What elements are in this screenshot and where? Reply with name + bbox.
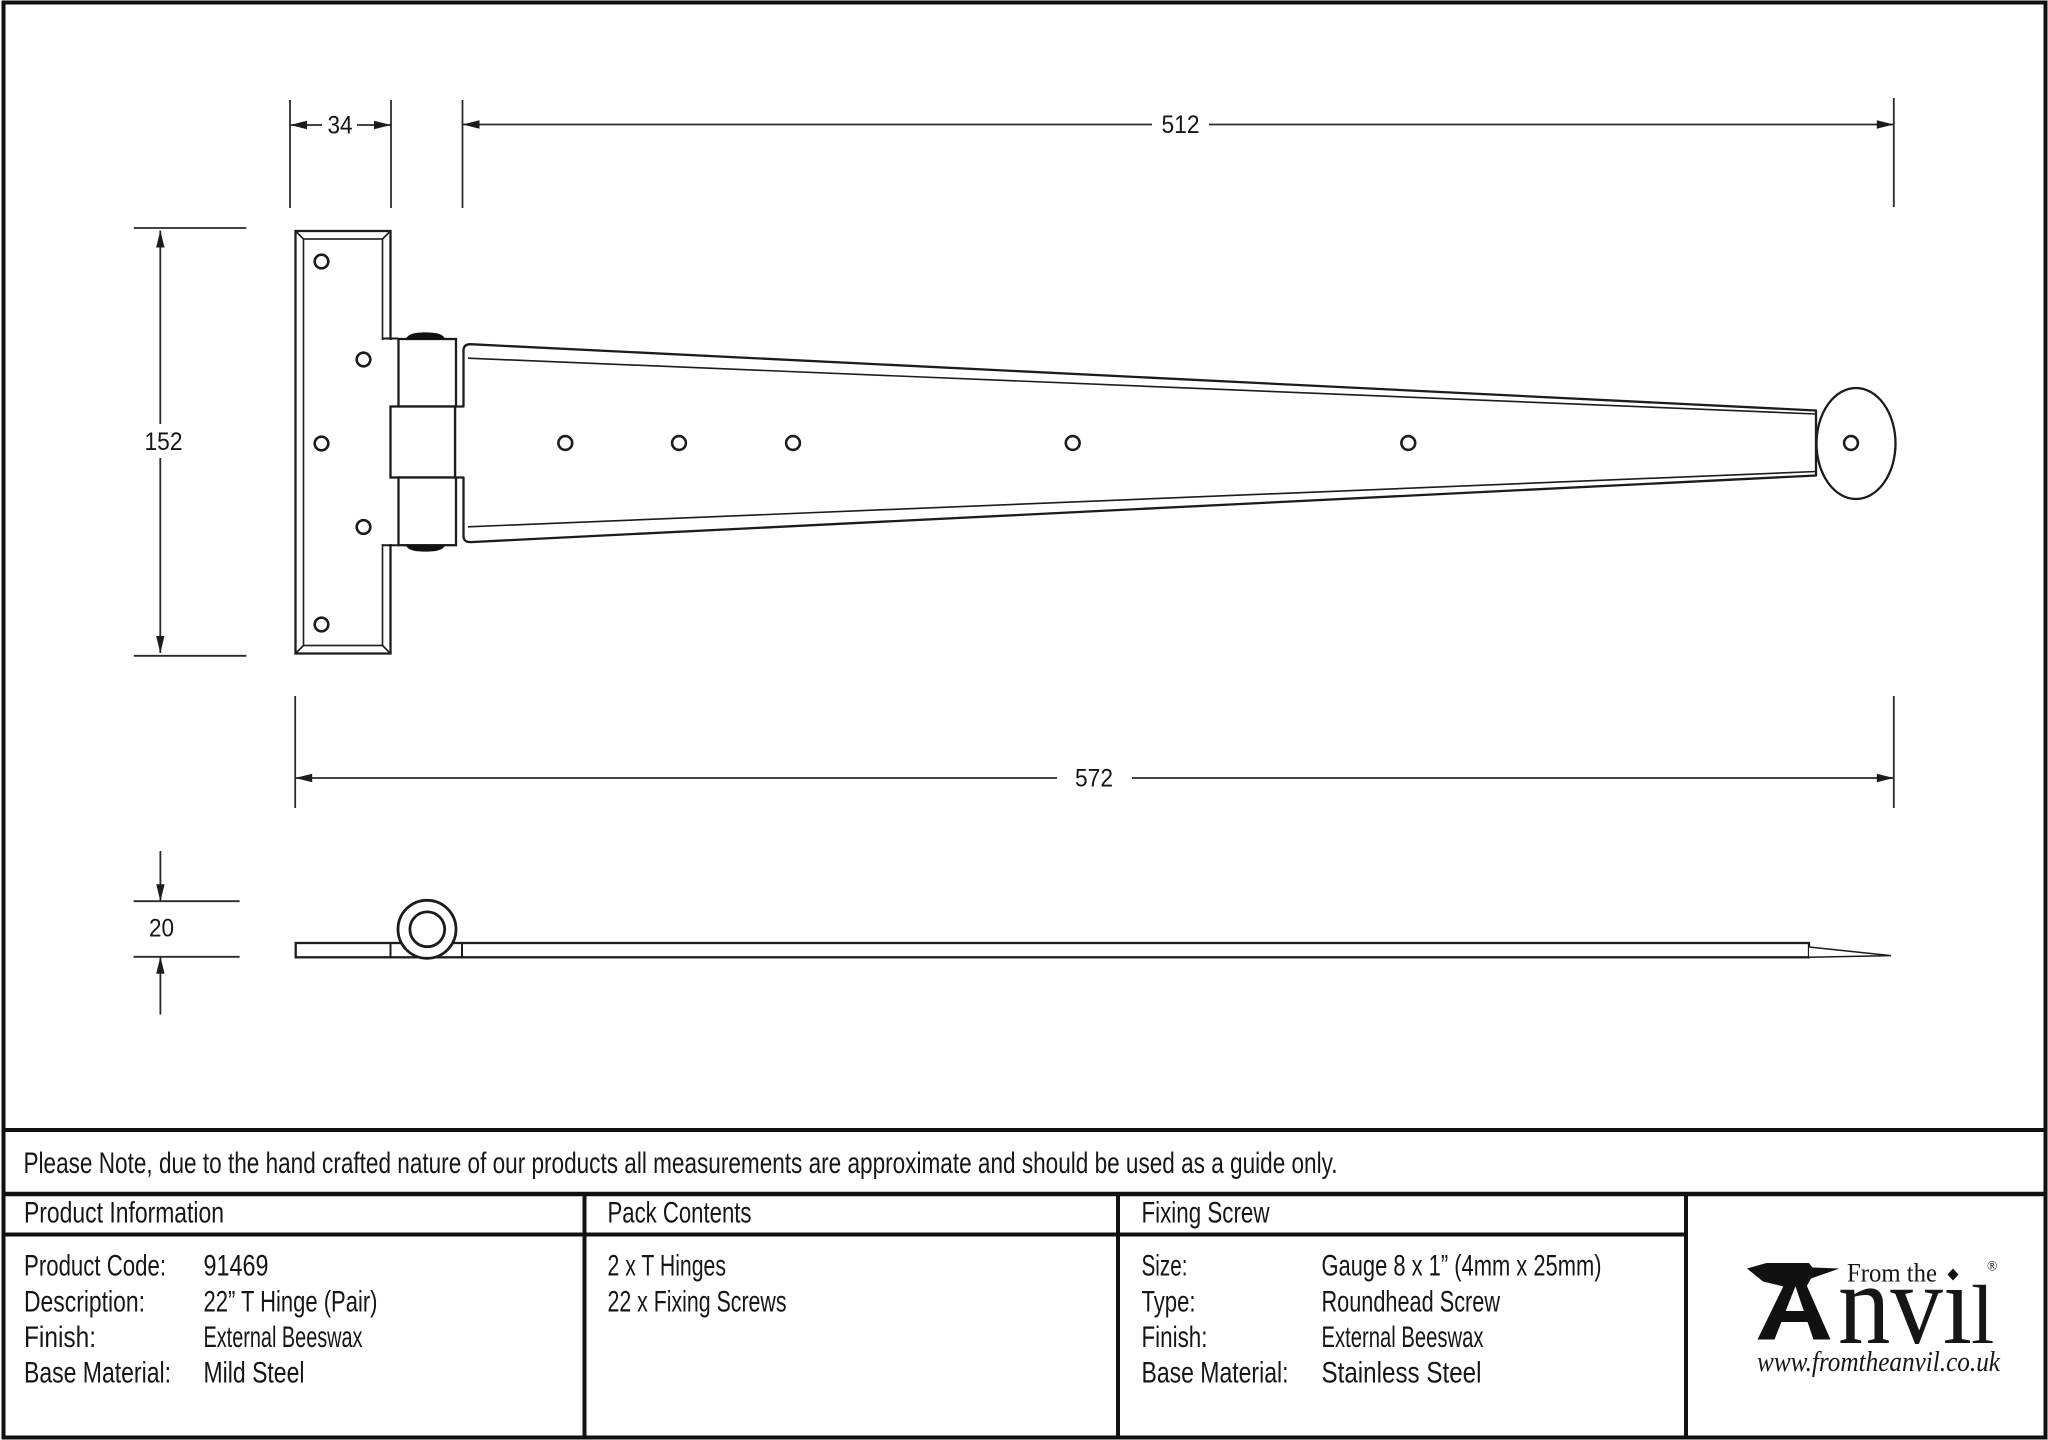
svg-text:Fixing Screw: Fixing Screw xyxy=(1142,1197,1271,1230)
svg-text:2 x T Hinges: 2 x T Hinges xyxy=(608,1250,727,1283)
svg-text:Pack Contents: Pack Contents xyxy=(608,1197,752,1230)
svg-text:Roundhead Screw: Roundhead Screw xyxy=(1322,1286,1501,1319)
svg-text:www.fromtheanvil.co.uk: www.fromtheanvil.co.uk xyxy=(1757,1346,2001,1378)
svg-text:External Beeswax: External Beeswax xyxy=(204,1321,363,1354)
svg-text:Product Code:: Product Code: xyxy=(24,1250,166,1283)
svg-text:Please Note, due to the hand c: Please Note, due to the hand crafted nat… xyxy=(24,1147,1338,1180)
svg-text:152: 152 xyxy=(145,428,183,456)
svg-text:22” T Hinge (Pair): 22” T Hinge (Pair) xyxy=(204,1286,378,1319)
svg-text:22 x Fixing Screws: 22 x Fixing Screws xyxy=(608,1286,787,1319)
svg-text:34: 34 xyxy=(328,112,353,140)
svg-text:Product Information: Product Information xyxy=(24,1197,224,1230)
svg-text:Mild Steel: Mild Steel xyxy=(204,1357,305,1390)
svg-text:Base Material:: Base Material: xyxy=(1142,1357,1289,1390)
svg-text:91469: 91469 xyxy=(204,1250,269,1283)
svg-text:Description:: Description: xyxy=(24,1286,145,1319)
svg-text:Base Material:: Base Material: xyxy=(24,1357,171,1390)
svg-text:Size:: Size: xyxy=(1142,1250,1188,1283)
svg-text:External Beeswax: External Beeswax xyxy=(1322,1321,1484,1354)
svg-text:20: 20 xyxy=(149,915,174,943)
svg-text:572: 572 xyxy=(1075,765,1113,793)
svg-text:Type:: Type: xyxy=(1142,1286,1196,1319)
svg-text:®: ® xyxy=(1987,1259,1997,1274)
svg-text:Finish:: Finish: xyxy=(24,1321,96,1354)
svg-text:Gauge 8 x 1” (4mm x 25mm): Gauge 8 x 1” (4mm x 25mm) xyxy=(1322,1250,1602,1283)
svg-text:512: 512 xyxy=(1162,111,1200,139)
svg-text:Finish:: Finish: xyxy=(1142,1321,1208,1354)
svg-text:Stainless Steel: Stainless Steel xyxy=(1322,1357,1482,1390)
